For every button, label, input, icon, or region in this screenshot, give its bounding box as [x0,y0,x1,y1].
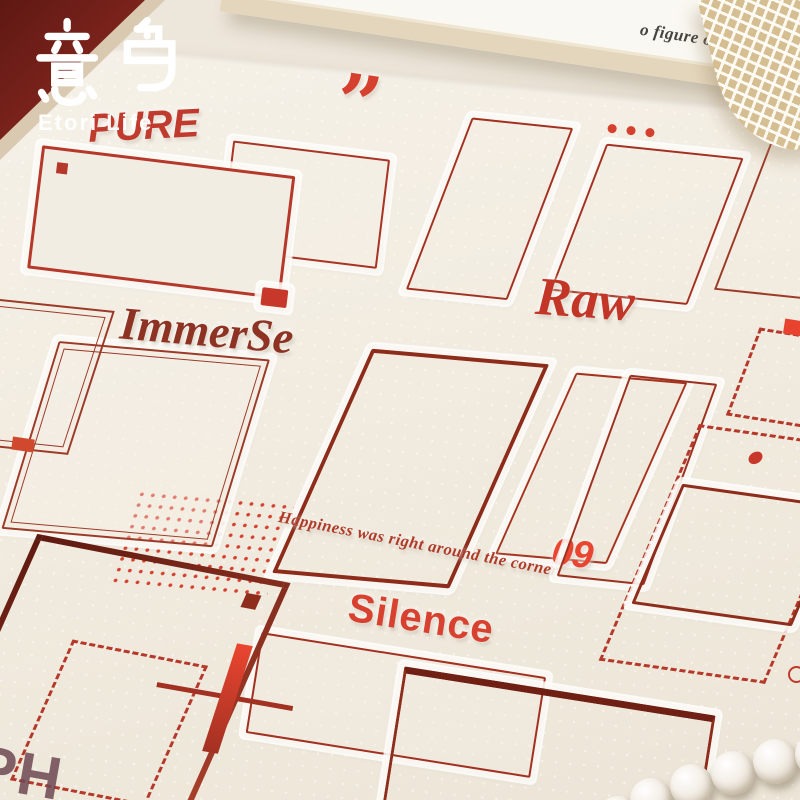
product-photo-scene: o figure out what I wanted, PURE ” Raw I… [0,0,800,800]
red-chip [260,287,288,308]
red-chip-right [783,319,800,337]
quote-icon: ” [332,71,385,139]
brand-logo: 意鸟 Etori Life [30,16,220,136]
square-marker-icon [56,162,68,174]
square-marker-icon [240,593,261,610]
pearl [630,778,672,800]
logo-cn-icon [30,16,195,108]
pearl-beads [608,712,800,800]
ring-marker-icon [788,666,800,683]
dot-marker-icon [746,451,764,465]
top-right-frames: Raw [413,84,800,377]
pearl [753,739,798,784]
logo-en-text: Etori Life [38,110,220,136]
pearl [711,751,755,795]
triple-dots-icon [607,124,655,138]
raw-label: Raw [534,265,637,334]
plus-marker-icon [146,631,302,771]
pearl [670,764,713,800]
